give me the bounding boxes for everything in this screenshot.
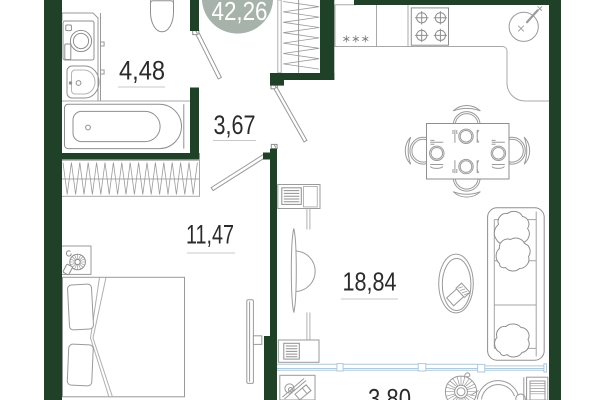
svg-text:42,26: 42,26	[212, 0, 268, 26]
svg-text:4,48: 4,48	[119, 56, 165, 86]
svg-text:3,67: 3,67	[214, 110, 256, 140]
svg-text:18,84: 18,84	[343, 269, 397, 297]
svg-text:11,47: 11,47	[186, 220, 234, 250]
svg-text:3,80: 3,80	[368, 384, 411, 400]
